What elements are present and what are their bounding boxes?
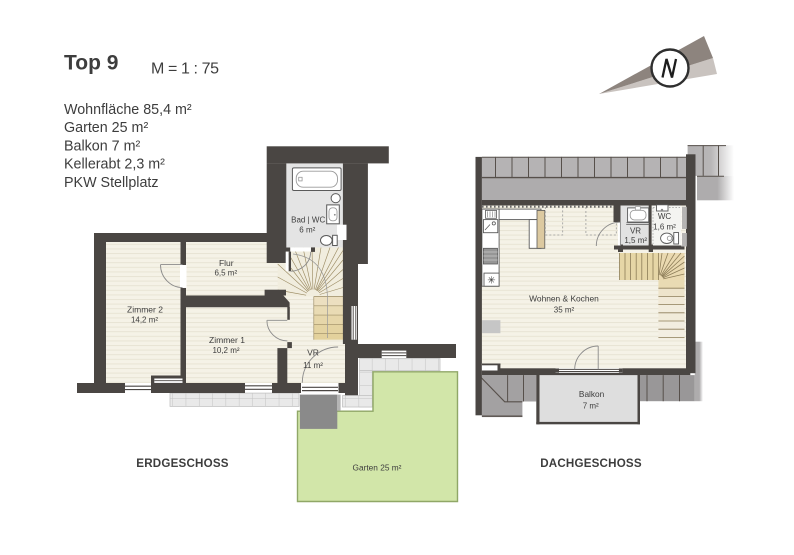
svg-text:Zimmer 2: Zimmer 2 <box>127 304 163 314</box>
svg-text:6 m²: 6 m² <box>299 226 315 235</box>
svg-text:Top 9: Top 9 <box>64 52 118 75</box>
svg-text:M = 1 : 75: M = 1 : 75 <box>151 61 219 78</box>
svg-text:VR: VR <box>630 227 641 236</box>
svg-text:PKW Stellplatz: PKW Stellplatz <box>64 175 159 191</box>
svg-text:Garten 25 m²: Garten 25 m² <box>353 463 402 473</box>
svg-text:Wohnfläche 85,4 m²: Wohnfläche 85,4 m² <box>64 102 192 118</box>
svg-text:14,2 m²: 14,2 m² <box>131 315 158 324</box>
svg-text:WC: WC <box>658 212 672 221</box>
svg-text:Flur: Flur <box>219 258 234 268</box>
svg-text:7 m²: 7 m² <box>583 402 599 411</box>
svg-text:11 m²: 11 m² <box>303 361 323 370</box>
svg-text:Garten 25 m²: Garten 25 m² <box>64 120 148 136</box>
svg-text:VR: VR <box>307 348 319 358</box>
svg-text:10,2 m²: 10,2 m² <box>212 346 239 355</box>
svg-text:DACHGESCHOSS: DACHGESCHOSS <box>540 457 642 470</box>
svg-text:✳: ✳ <box>487 276 495 287</box>
svg-text:Bad | WC: Bad | WC <box>291 215 325 224</box>
svg-text:Kellerabt 2,3 m²: Kellerabt 2,3 m² <box>64 157 165 173</box>
svg-text:35 m²: 35 m² <box>554 306 575 315</box>
svg-text:Zimmer 1: Zimmer 1 <box>209 335 245 345</box>
svg-text:Balkon 7 m²: Balkon 7 m² <box>64 138 141 154</box>
svg-text:6,5 m²: 6,5 m² <box>214 269 237 278</box>
svg-text:1,6 m²: 1,6 m² <box>653 223 676 232</box>
svg-text:1,5 m²: 1,5 m² <box>624 236 647 245</box>
svg-text:Wohnen & Kochen: Wohnen & Kochen <box>529 294 599 304</box>
svg-text:ERDGESCHOSS: ERDGESCHOSS <box>136 457 228 470</box>
svg-text:Balkon: Balkon <box>579 389 605 399</box>
